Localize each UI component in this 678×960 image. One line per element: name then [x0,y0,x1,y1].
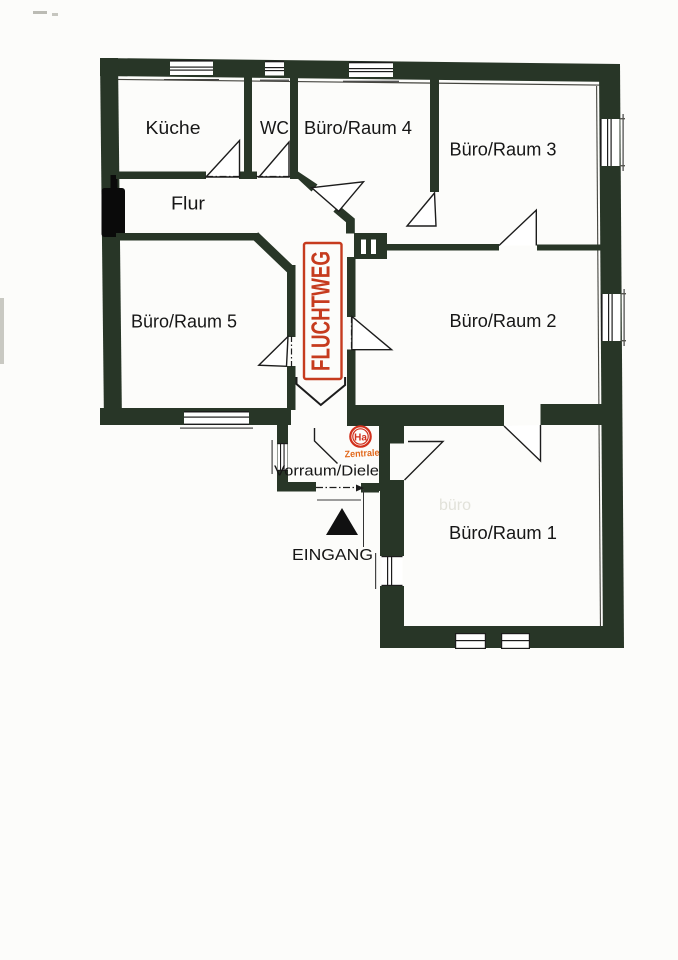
svg-text:WC: WC [260,117,289,138]
svg-text:Büro/Raum 3: Büro/Raum 3 [450,140,557,160]
svg-text:Ha: Ha [354,433,367,444]
svg-text:Vorraum/Diele: Vorraum/Diele [274,463,379,480]
svg-text:Büro/Raum 5: Büro/Raum 5 [131,312,237,332]
svg-text:Büro/Raum 1: Büro/Raum 1 [449,523,557,543]
svg-text:EINGANG: EINGANG [292,547,373,564]
svg-text:Küche: Küche [146,117,201,138]
svg-text:FLUCHTWEG: FLUCHTWEG [305,251,335,371]
svg-text:Zentrale: Zentrale [344,448,380,461]
svg-text:Büro/Raum 2: Büro/Raum 2 [450,311,557,331]
svg-text:büro: büro [439,497,471,514]
svg-text:Büro/Raum 4: Büro/Raum 4 [304,117,412,138]
svg-text:Flur: Flur [171,193,205,214]
